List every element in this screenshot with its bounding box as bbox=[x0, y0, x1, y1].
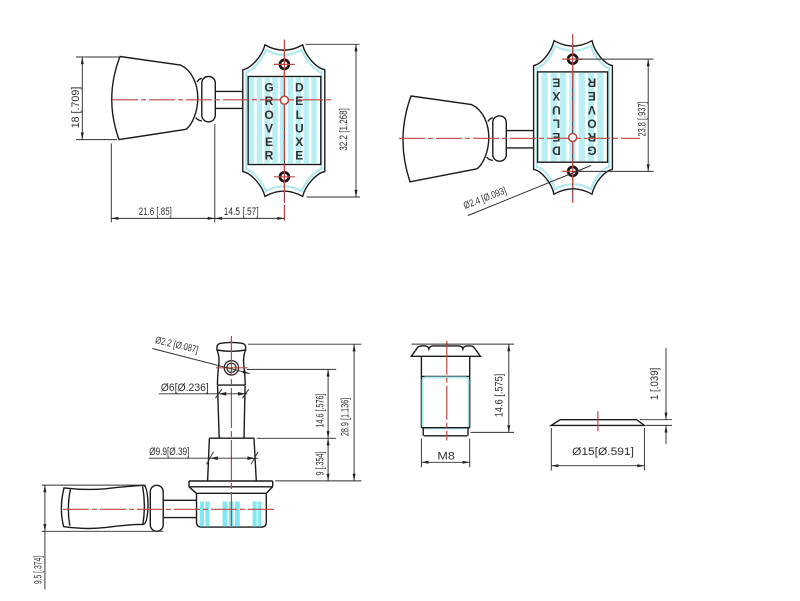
svg-text:14.5 [.57]: 14.5 [.57] bbox=[224, 206, 259, 218]
svg-text:D: D bbox=[295, 81, 304, 95]
svg-text:U: U bbox=[295, 121, 304, 135]
svg-text:Ø15[Ø.591]: Ø15[Ø.591] bbox=[572, 446, 634, 458]
svg-text:L: L bbox=[296, 108, 303, 122]
svg-text:U: U bbox=[552, 103, 561, 117]
svg-text:Ø6[Ø.236]: Ø6[Ø.236] bbox=[161, 382, 209, 394]
svg-text:R: R bbox=[265, 149, 274, 163]
svg-text:O: O bbox=[587, 116, 596, 130]
svg-text:R: R bbox=[265, 94, 274, 108]
svg-text:E: E bbox=[552, 76, 560, 90]
svg-text:23.8 [.937]: 23.8 [.937] bbox=[636, 102, 648, 137]
svg-text:D: D bbox=[552, 144, 561, 158]
svg-text:9 [.354]: 9 [.354] bbox=[315, 452, 327, 476]
svg-text:9.5 [.374]: 9.5 [.374] bbox=[33, 556, 45, 584]
svg-text:M8: M8 bbox=[437, 450, 455, 462]
svg-text:E: E bbox=[588, 89, 596, 103]
svg-text:28.9 [1.136]: 28.9 [1.136] bbox=[339, 398, 351, 436]
svg-text:V: V bbox=[265, 121, 273, 135]
svg-text:L: L bbox=[553, 116, 560, 130]
svg-text:18 [.709]: 18 [.709] bbox=[70, 87, 82, 129]
svg-text:14.6 [.576]: 14.6 [.576] bbox=[315, 394, 327, 428]
svg-text:G: G bbox=[264, 81, 273, 95]
svg-text:O: O bbox=[264, 108, 273, 122]
svg-text:X: X bbox=[295, 135, 303, 149]
svg-text:E: E bbox=[552, 130, 560, 144]
svg-text:32.2 [1.268]: 32.2 [1.268] bbox=[338, 108, 350, 151]
svg-text:E: E bbox=[265, 135, 273, 149]
svg-text:V: V bbox=[588, 103, 596, 117]
svg-text:G: G bbox=[587, 144, 596, 158]
svg-text:Ø2.4 [Ø.093]: Ø2.4 [Ø.093] bbox=[462, 185, 508, 211]
svg-text:21.6 [.85]: 21.6 [.85] bbox=[139, 206, 172, 218]
svg-text:E: E bbox=[295, 94, 303, 108]
svg-text:R: R bbox=[587, 76, 596, 90]
svg-text:E: E bbox=[295, 149, 303, 163]
svg-text:1 [.039]: 1 [.039] bbox=[649, 368, 661, 401]
svg-text:Ø9.9[Ø.39]: Ø9.9[Ø.39] bbox=[149, 446, 189, 458]
svg-text:14.6 [.575]: 14.6 [.575] bbox=[494, 374, 506, 418]
svg-text:Ø2.2 [Ø.087]: Ø2.2 [Ø.087] bbox=[154, 335, 200, 356]
svg-text:R: R bbox=[587, 130, 596, 144]
svg-text:X: X bbox=[552, 89, 560, 103]
